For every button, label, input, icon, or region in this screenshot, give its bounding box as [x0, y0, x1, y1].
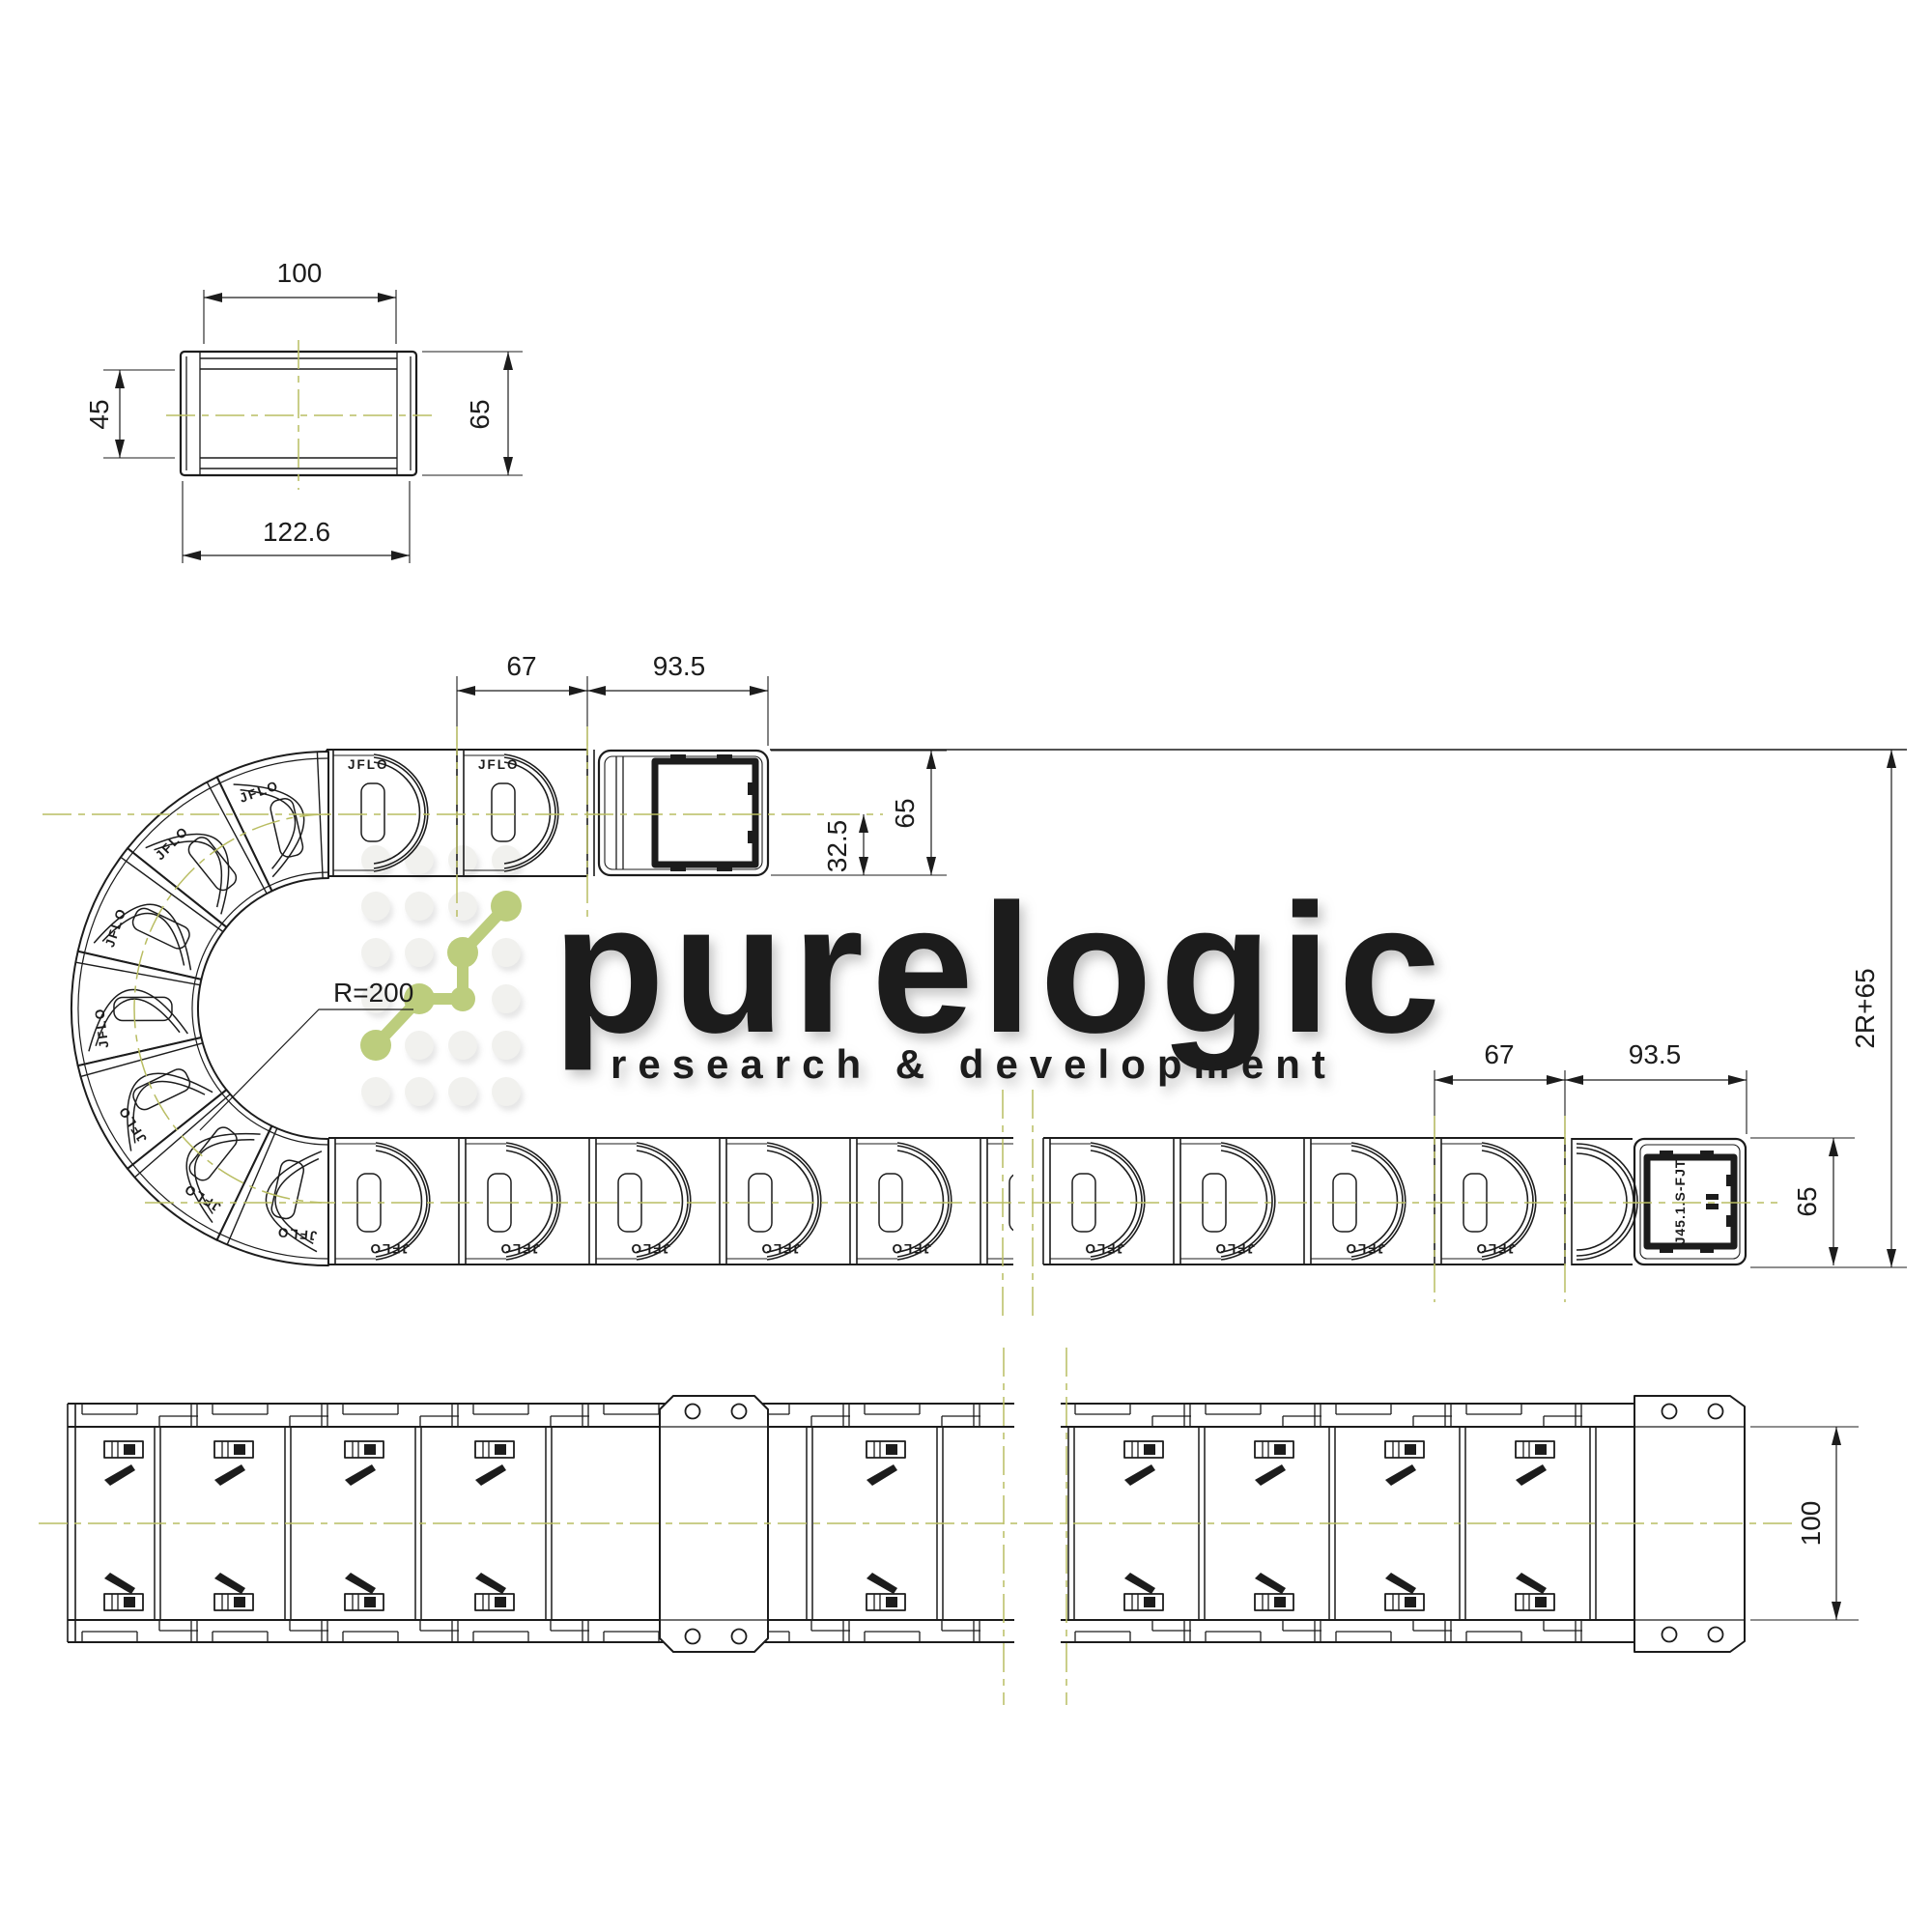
dim-section-outer-width: 122.6 [183, 481, 410, 563]
dim-lower-end-length: 93.5 [1565, 1039, 1747, 1134]
dim-lower-height: 65 [1750, 1138, 1855, 1265]
dim-upper-pitch: 67 [457, 651, 587, 746]
lower-run [328, 1138, 1111, 1264]
dim-overall-height: 2R+65 [1850, 750, 1891, 1267]
logo-dot-grid [361, 845, 521, 1106]
dim-label-half-height: 32.5 [822, 820, 852, 873]
dim-label-upper-end-length: 93.5 [653, 651, 706, 681]
watermark: purelogic research & development [360, 845, 1448, 1106]
connector-badge-icon [1706, 1194, 1719, 1209]
connector-frame [1647, 1157, 1734, 1246]
dim-label-section-inner-height: 45 [84, 399, 114, 429]
dim-label-upper-pitch: 67 [506, 651, 536, 681]
connector-model-label: J45.1.S-FJT [1672, 1159, 1688, 1245]
connector-frame [655, 761, 755, 865]
dim-label-upper-height: 65 [890, 798, 920, 828]
dim-label-lower-end-length: 93.5 [1629, 1039, 1682, 1069]
dim-section-inner-width: 100 [204, 258, 396, 344]
dim-label-overall-height: 2R+65 [1850, 968, 1880, 1048]
dim-label-bend-radius: R=200 [333, 978, 413, 1008]
end-connector-lower: J45.1.S-FJT [1565, 1138, 1746, 1265]
dim-label-section-inner-width: 100 [277, 258, 323, 288]
end-connector-upper [587, 750, 768, 876]
cross-section-view: 100 45 65 122.6 [84, 258, 523, 563]
dim-label-lower-pitch: 67 [1484, 1039, 1514, 1069]
dim-lower-pitch: 67 [1435, 1039, 1565, 1134]
logo-green-zigzag-icon [376, 906, 506, 1045]
dim-label-section-outer-height: 65 [465, 399, 495, 429]
dim-label-lower-height: 65 [1792, 1186, 1822, 1216]
dim-section-outer-height: 65 [422, 352, 523, 475]
drawing-page: JFLO JFLO JFLO [0, 0, 1932, 1932]
top-break-lines [1004, 1348, 1066, 1705]
dim-label-section-outer-width: 122.6 [263, 517, 330, 547]
dim-upper-end-length: 93.5 [587, 651, 768, 746]
dim-label-top-inner-width: 100 [1796, 1501, 1826, 1547]
dim-section-inner-height: 45 [84, 370, 175, 458]
purelogic-logo-icon [361, 845, 521, 1106]
watermark-tagline: research & development [611, 1041, 1337, 1087]
technical-drawing: JFLO JFLO JFLO [0, 0, 1932, 1932]
dim-upper-height: 65 [771, 751, 947, 875]
upper-run [327, 750, 768, 876]
lower-run-continued: J45.1.S-FJT [1043, 1138, 1746, 1265]
